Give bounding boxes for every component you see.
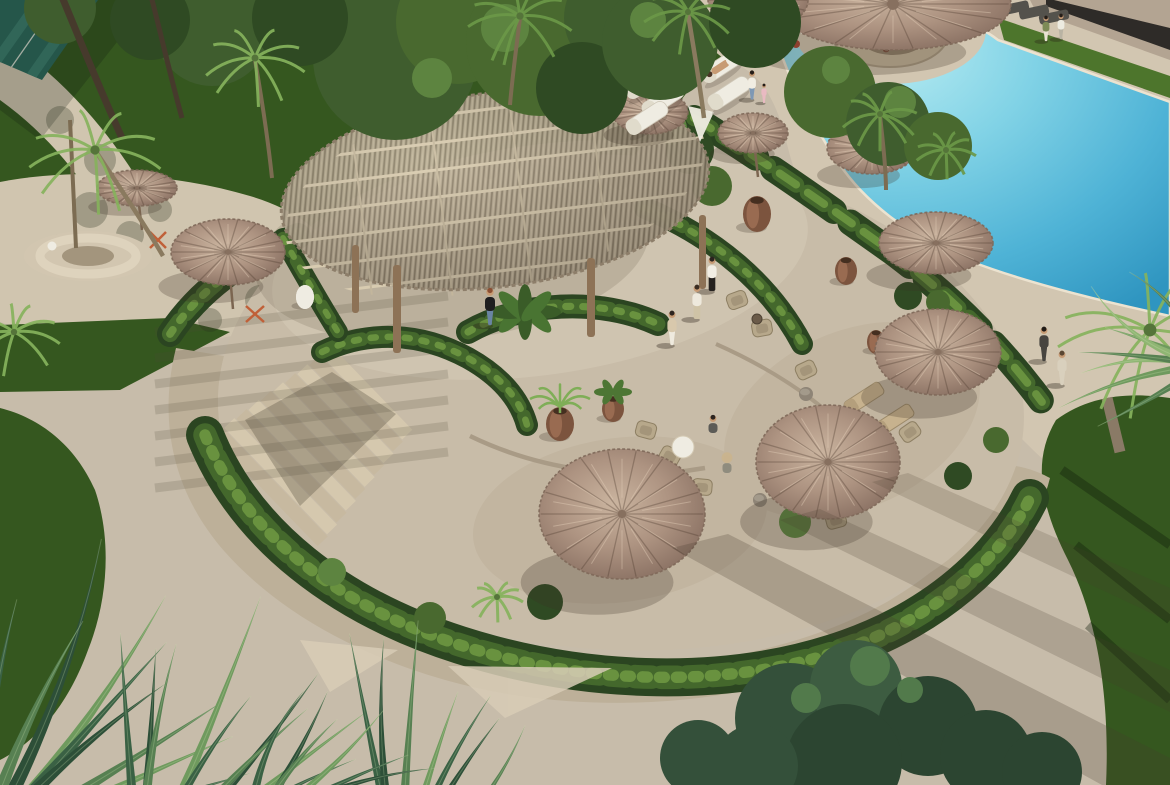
bush (983, 427, 1009, 453)
white-vase (296, 285, 314, 309)
person (709, 415, 718, 433)
bush (318, 558, 346, 586)
center-planter (489, 284, 561, 340)
tree-canopy (412, 58, 452, 98)
table (752, 314, 762, 324)
tree-canopy (850, 646, 890, 686)
tree-canopy (791, 683, 821, 713)
bush (414, 602, 446, 634)
tree-canopy (884, 86, 916, 118)
tree-canopy (897, 677, 923, 703)
table (672, 436, 694, 458)
resort-aerial-render (0, 0, 1170, 785)
resort-render-image (0, 0, 1170, 785)
tree-canopy (822, 56, 850, 84)
fire-pit-lounge (24, 231, 152, 281)
bush (944, 462, 972, 490)
